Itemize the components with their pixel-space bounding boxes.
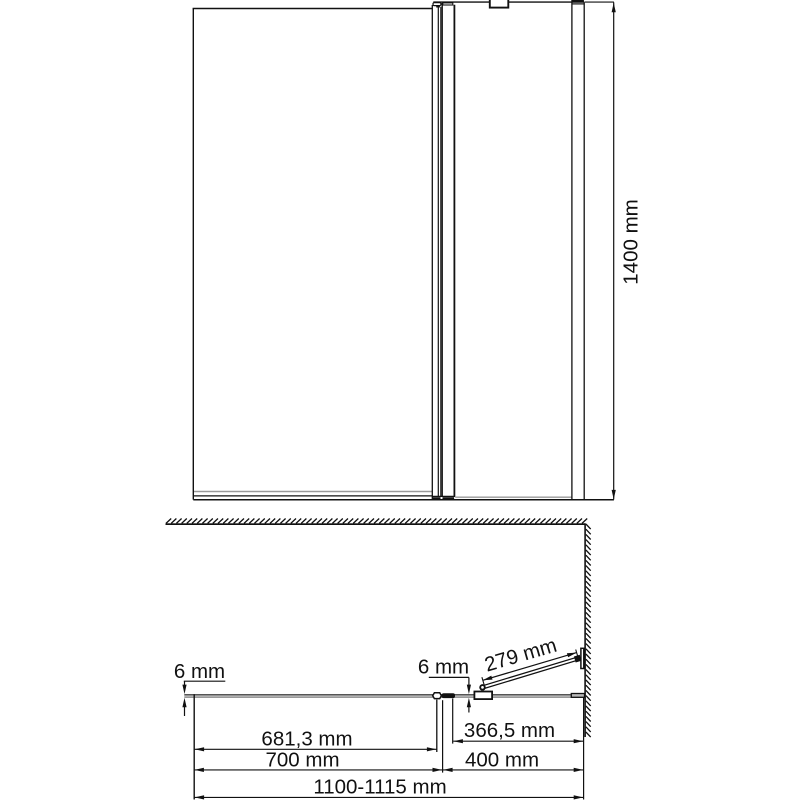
svg-text:6 mm: 6 mm xyxy=(418,656,469,679)
svg-text:681,3 mm: 681,3 mm xyxy=(261,727,352,750)
svg-text:366,5 mm: 366,5 mm xyxy=(464,719,555,742)
svg-text:700 mm: 700 mm xyxy=(265,748,339,771)
svg-text:400 mm: 400 mm xyxy=(465,748,539,771)
svg-text:1100-1115 mm: 1100-1115 mm xyxy=(313,776,446,799)
svg-text:279 mm: 279 mm xyxy=(482,634,560,677)
svg-text:1400 mm: 1400 mm xyxy=(620,199,643,284)
svg-text:6 mm: 6 mm xyxy=(174,660,225,683)
